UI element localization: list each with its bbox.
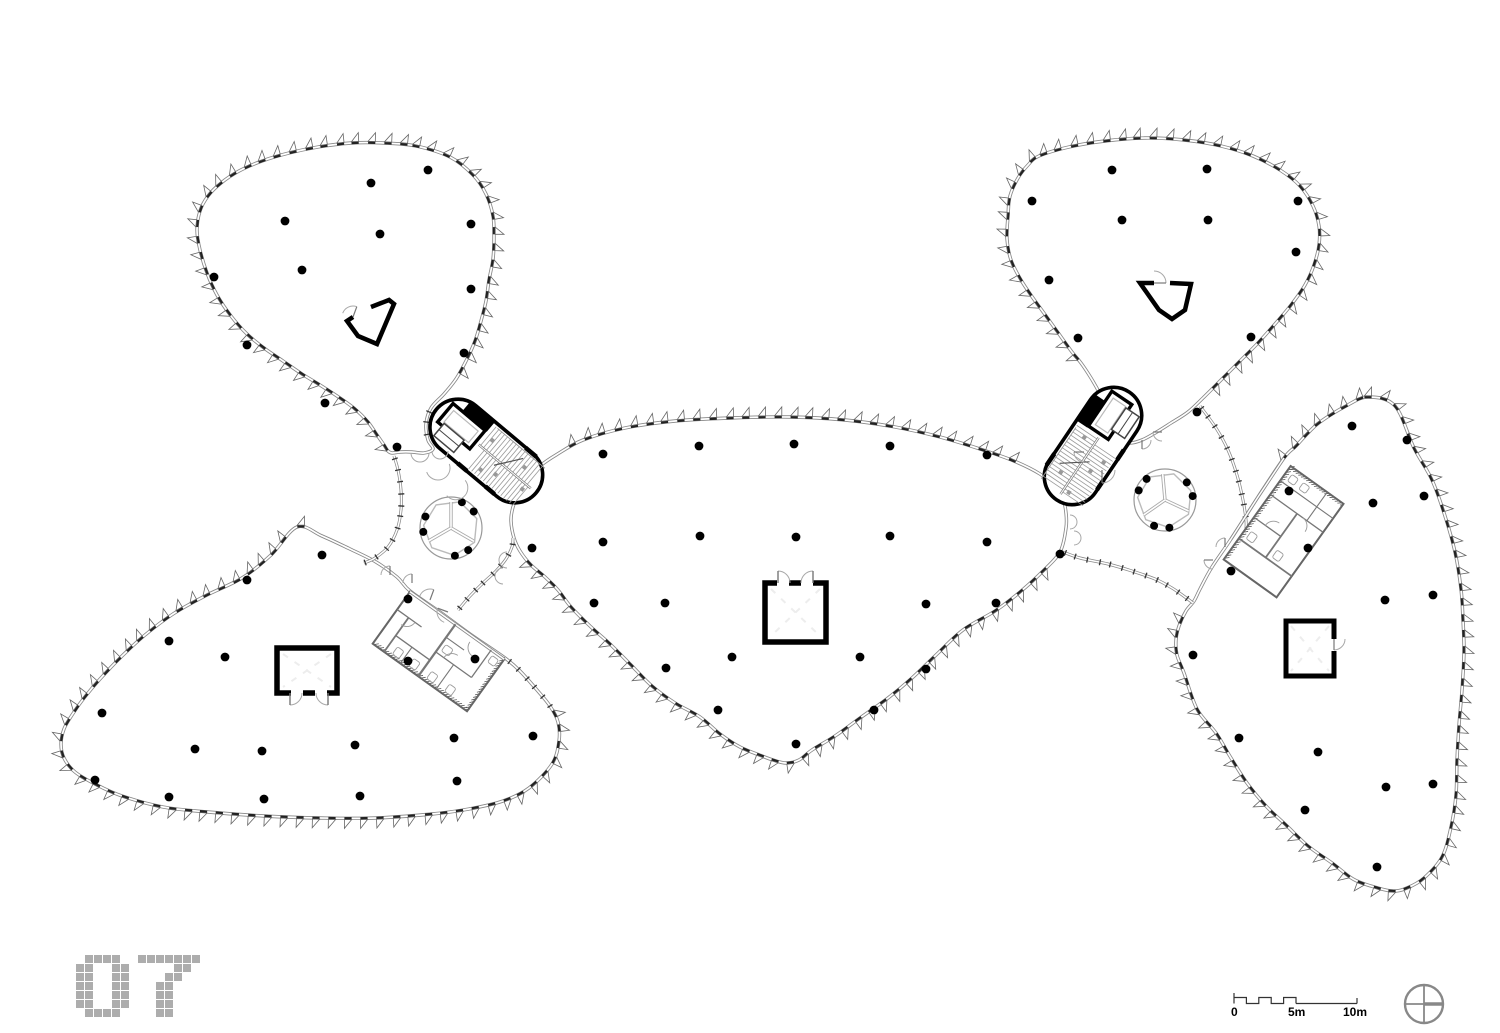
svg-text:10m: 10m [1343, 1005, 1367, 1019]
svg-text:0: 0 [1231, 1005, 1238, 1019]
svg-text:5m: 5m [1288, 1005, 1305, 1019]
